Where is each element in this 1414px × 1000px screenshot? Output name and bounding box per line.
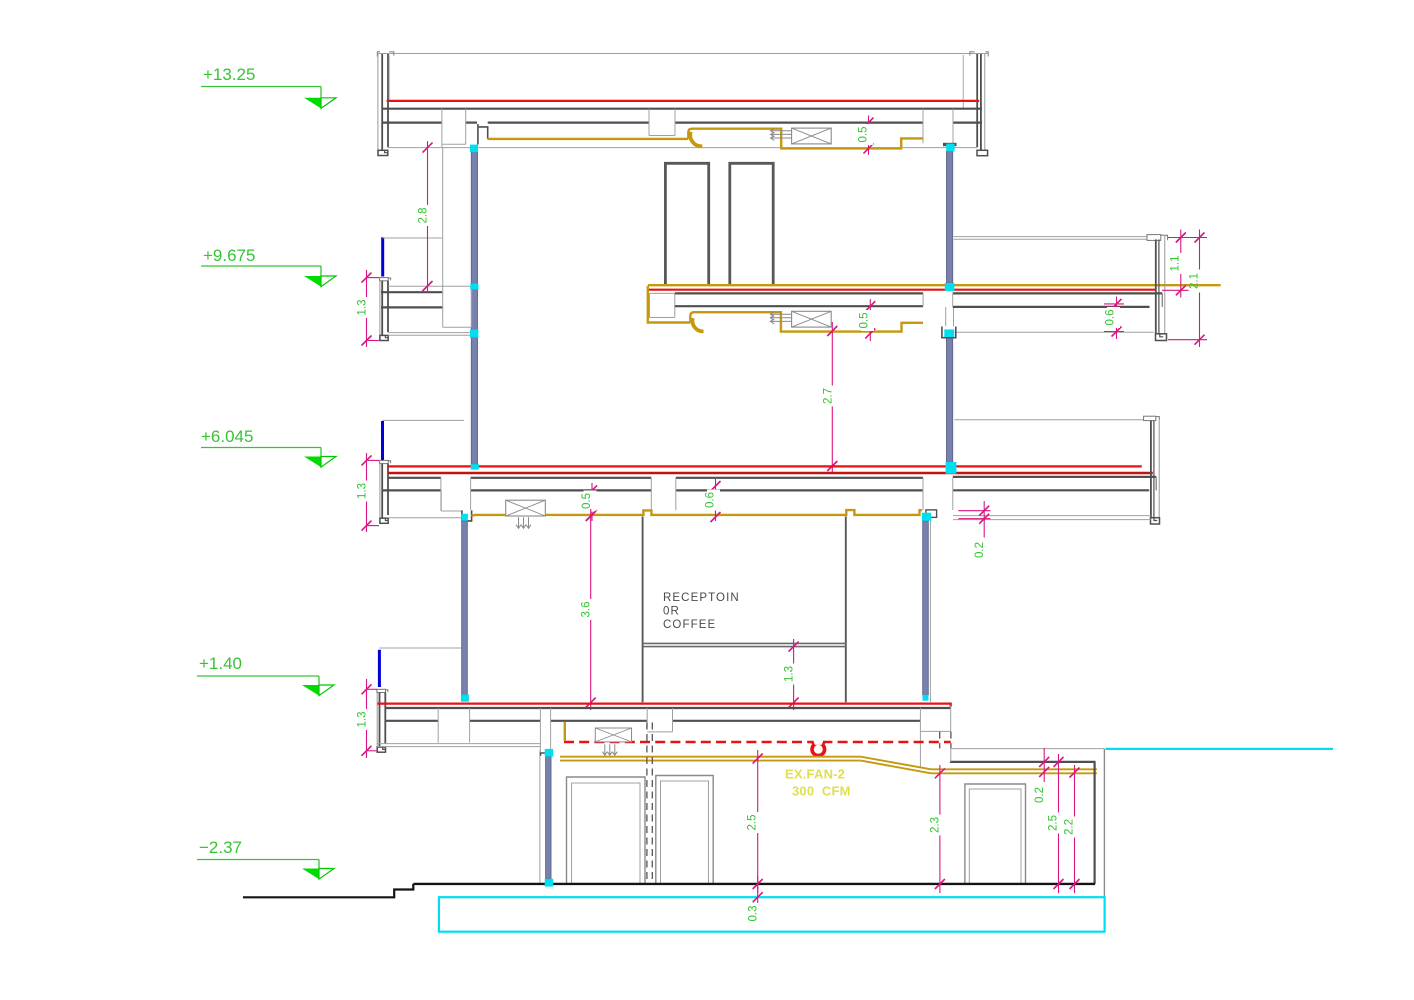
svg-text:0R: 0R — [663, 606, 680, 618]
svg-text:1.3: 1.3 — [357, 300, 369, 316]
svg-text:0.5: 0.5 — [858, 127, 870, 143]
svg-text:2.8: 2.8 — [418, 208, 430, 224]
svg-text:0.2: 0.2 — [974, 542, 986, 558]
svg-text:+9.675: +9.675 — [203, 246, 255, 265]
svg-text:1.3: 1.3 — [357, 483, 369, 499]
svg-text:0.2: 0.2 — [1034, 787, 1046, 803]
svg-text:2.3: 2.3 — [930, 817, 942, 833]
svg-text:0.6: 0.6 — [705, 492, 717, 508]
svg-text:2.5: 2.5 — [1048, 815, 1060, 831]
svg-text:3.6: 3.6 — [581, 602, 593, 618]
svg-text:0.5: 0.5 — [581, 493, 593, 509]
svg-text:2.2: 2.2 — [1064, 819, 1076, 835]
svg-text:1.3: 1.3 — [784, 666, 796, 682]
svg-text:+6.045: +6.045 — [201, 427, 253, 446]
svg-text:−2.37: −2.37 — [199, 838, 242, 857]
svg-text:1.3: 1.3 — [357, 712, 369, 728]
svg-text:0.6: 0.6 — [1105, 310, 1117, 326]
svg-text:2.1: 2.1 — [1189, 273, 1201, 289]
svg-text:+13.25: +13.25 — [203, 65, 255, 84]
svg-text:EX.FAN-2: EX.FAN-2 — [785, 767, 845, 782]
svg-text:RECEPTOIN: RECEPTOIN — [663, 592, 740, 604]
svg-text:1.1: 1.1 — [1170, 256, 1182, 272]
svg-text:2.7: 2.7 — [822, 388, 834, 404]
svg-text:2.5: 2.5 — [747, 815, 759, 831]
svg-text:COFFEE: COFFEE — [663, 619, 716, 631]
svg-text:+1.40: +1.40 — [199, 654, 242, 673]
svg-text:0.3: 0.3 — [748, 906, 760, 922]
svg-text:300 CFM: 300 CFM — [792, 784, 851, 799]
svg-text:0.5: 0.5 — [859, 313, 871, 329]
